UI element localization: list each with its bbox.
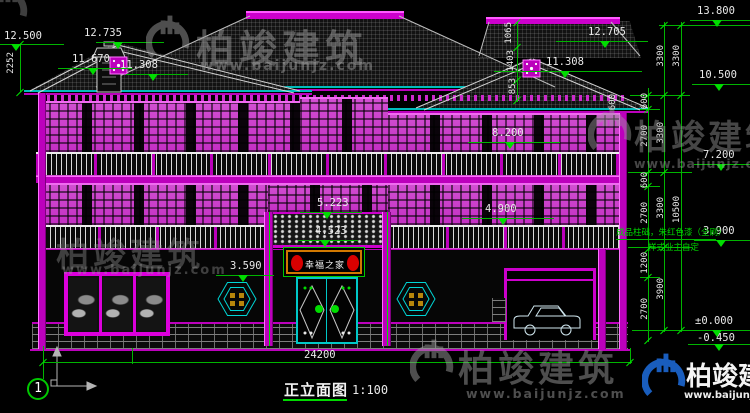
dim-outer-top: 3300 [672,45,682,67]
elev-right-peak: 12.705 [588,26,626,38]
elev-marker [600,41,610,48]
note-style: 样式业主自定 [648,241,699,253]
elev-marker [712,20,722,27]
dim-line [462,218,554,219]
elev-10500: 10.500 [699,69,737,81]
elev-marker [716,240,726,247]
dim-left-height: 2252 [6,52,16,74]
elev-marker [113,42,123,49]
elev-floor1: 4.900 [485,203,517,215]
dim-inner-4: 1200 [640,252,650,274]
elev-window: 3.590 [230,260,262,272]
elev-top: 13.800 [697,5,735,17]
dim-mid-1: 3300 [656,122,666,144]
drawing-scale: 1:100 [352,383,388,397]
note-column: 成品柱础，朱红色漆（全刷） [616,226,727,238]
dim-inner-2: 600 [640,172,650,188]
dim-mid-2: 3300 [656,197,666,219]
elev-marker [320,240,330,247]
dim-overall-h: 24200 [304,349,336,361]
dim-inner-1: 2700 [640,125,650,147]
elev-marker [714,344,724,351]
dim-line [659,25,750,26]
elev-marker [505,142,515,149]
elev-7200: 7.200 [703,149,735,161]
elev-neg: -0.450 [697,332,735,344]
elev-marker [716,164,726,171]
line-art [0,0,750,413]
drawing-title: 正立面图 [284,379,348,400]
elev-marker [322,212,332,219]
dim-line [20,44,21,92]
note-underline [616,239,716,240]
elev-porch-ridge: 5.223 [317,197,349,209]
hex-window-right [397,283,435,316]
dim-inner-0: 600 [640,93,650,109]
dim-roof-c: 853 [508,78,518,94]
dim-roof-b: 1403 [506,50,516,72]
elev-porch-eave: 4.523 [315,225,347,237]
car [514,306,580,335]
dim-overall-v: 10500 [672,196,682,223]
elev-marker [498,218,508,225]
hex-window-left [218,283,256,316]
dim-inner-3: 2700 [640,202,650,224]
elev-marker [148,74,158,81]
title-underline [283,399,347,401]
dim-inner-5: 2700 [640,298,650,320]
elev-marker [560,71,570,78]
elev-left-a: 11.670 [72,53,110,65]
ucs-icon [51,347,96,390]
door-decor [300,286,354,338]
elev-left-peak: 12.735 [84,27,122,39]
cad-canvas: 幸福之家 [0,0,750,413]
dim-chain-line [681,22,682,332]
dim-line [0,44,64,45]
elev-marker [238,275,248,282]
dim-line [632,330,750,331]
brand-name: 柏竣建筑 [686,356,750,393]
brand-url: www.baijunjz.com [684,390,750,401]
axis-bubble: 1 [27,378,49,400]
dim-line [628,172,692,173]
dim-mid-3: 3900 [656,278,666,300]
dim-line [132,348,133,364]
dim-roof-a: 1065 [504,22,514,44]
elev-floor2: 8.200 [492,127,524,139]
gable-ornament-right [523,60,540,77]
elev-marker [714,84,724,91]
elev-marker [88,68,98,75]
elev-zero: ±0.000 [695,315,733,327]
elev-right-a: 11.308 [546,56,584,68]
dim-mid-0: 3300 [656,45,666,67]
